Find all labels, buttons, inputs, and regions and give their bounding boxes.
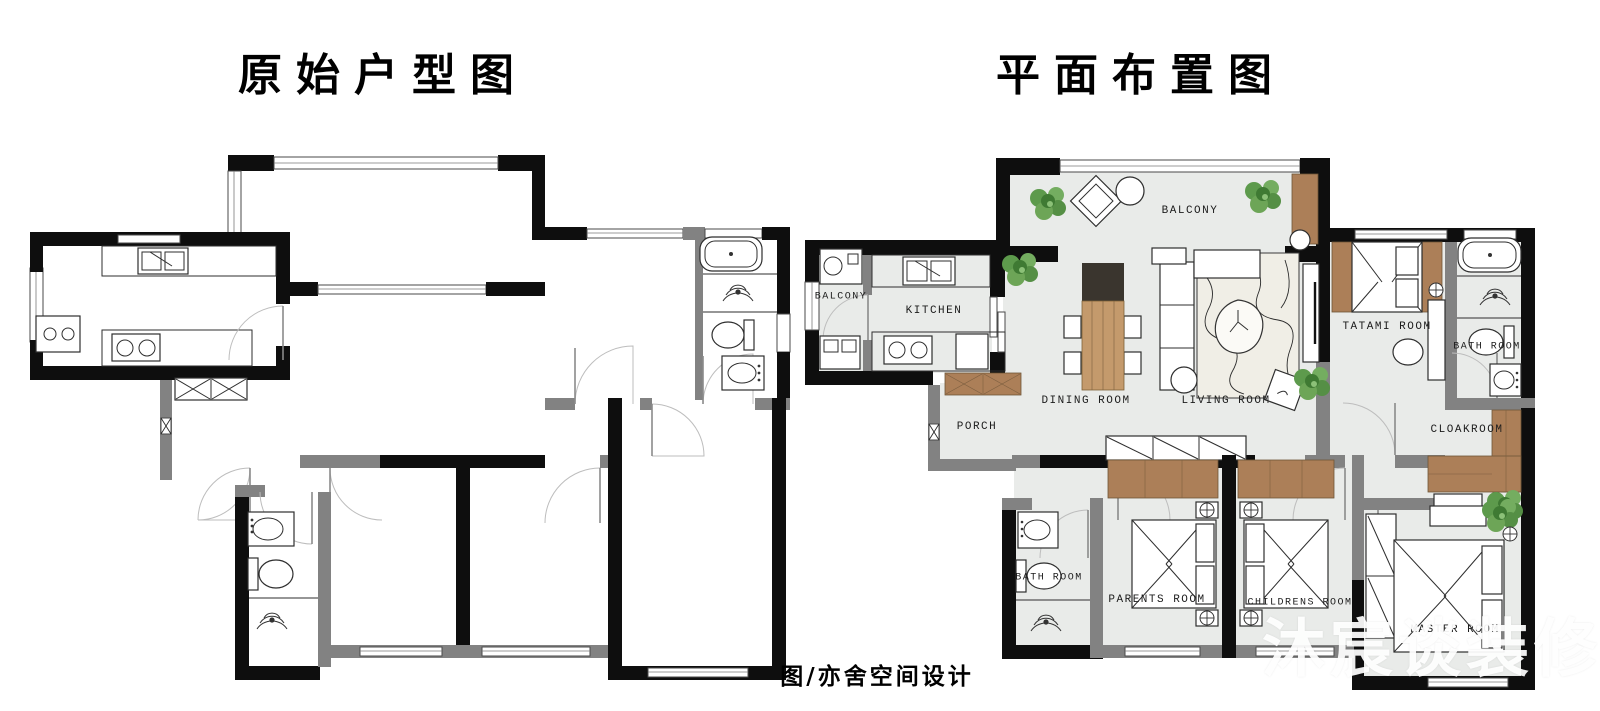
- bathtub-icon: [700, 237, 762, 271]
- washer-icon: [820, 249, 862, 284]
- wardrobe: [1108, 460, 1218, 498]
- room-label-kitchen: KITCHEN: [906, 305, 963, 317]
- bathtub-icon: [1458, 238, 1521, 272]
- washer-icon: [36, 316, 80, 352]
- bed: [1132, 502, 1218, 626]
- sink-icon: [722, 356, 764, 390]
- room-label-living: LIVING ROOM: [1181, 395, 1270, 407]
- room-label-bath-bottom: BATH ROOM: [1015, 573, 1083, 584]
- fridge: [956, 334, 988, 369]
- cabinet: [1430, 506, 1486, 526]
- room-label-balcony-left: BALCONY: [815, 292, 868, 303]
- desk: [1428, 300, 1445, 380]
- right-plan-title: 平面布置图: [996, 39, 1286, 103]
- room-label-parents: PARENTS ROOM: [1108, 594, 1205, 606]
- room-label-porch: PORCH: [957, 421, 998, 433]
- floor-plan-poster: 原始户型图 平面布置图 BALCONY BALCONY KITCHEN PORC…: [0, 0, 1600, 711]
- flower-pot-icon: [1429, 283, 1443, 297]
- desk-chair: [1393, 339, 1423, 365]
- photo-credit-caption: 图/亦舍空间设计: [780, 657, 973, 691]
- tatami-bed: [1332, 242, 1442, 312]
- room-label-dining: DINING ROOM: [1041, 395, 1130, 407]
- stove-icon: [112, 334, 160, 361]
- side-table: [1290, 230, 1310, 250]
- shower-icon: [723, 285, 753, 301]
- original-floor-plan: [30, 155, 790, 680]
- watermark: 沐宸谈装修: [1262, 599, 1600, 690]
- round-table: [1116, 177, 1144, 205]
- tv-console: [1303, 264, 1319, 362]
- sink-icon: [248, 512, 294, 546]
- wardrobe: [1238, 460, 1334, 498]
- sink-icon: [1018, 512, 1058, 548]
- toilet-icon: [248, 558, 293, 590]
- kitchen-sink-icon: [903, 257, 955, 285]
- shoe-cabinet: [945, 373, 1021, 395]
- shower-icon: [257, 613, 287, 629]
- toilet-icon: [712, 320, 754, 350]
- room-label-bath-right: BATH ROOM: [1453, 342, 1521, 353]
- room-label-cloakroom: CLOAKROOM: [1431, 424, 1504, 436]
- pouf: [1171, 367, 1197, 393]
- stove-icon: [884, 336, 932, 364]
- sink-icon: [1490, 364, 1521, 396]
- room-label-balcony-top: BALCONY: [1162, 205, 1219, 217]
- room-label-tatami: TATAMI ROOM: [1342, 321, 1431, 333]
- dryer-icon: [820, 336, 860, 369]
- kitchen-sink-icon: [138, 248, 188, 274]
- left-plan-title: 原始户型图: [238, 39, 528, 103]
